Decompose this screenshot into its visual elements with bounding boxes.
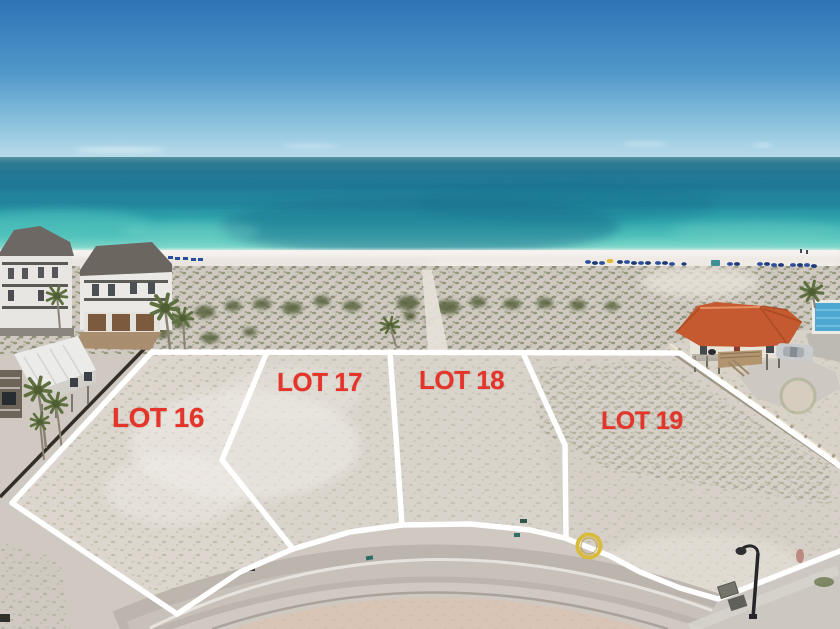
left-deck [0,370,22,418]
left-house-a [0,226,74,336]
red-weed [796,549,804,563]
parked-suv [776,343,814,362]
garage-door [88,314,106,331]
aerial-lot-photo: LOT 16 LOT 17 LOT 18 LOT 19 [0,0,840,629]
lot-17-label: LOT 17 [277,369,362,395]
lot-16-label: LOT 16 [112,404,204,432]
lot-18-label: LOT 18 [419,367,504,393]
ocean [0,157,840,258]
beach-tent [711,260,720,266]
grill [708,349,716,355]
parked-vehicle [2,392,16,405]
yellow-umbrella [607,259,614,263]
sky [0,0,840,158]
pool [812,300,840,334]
photo-scene [0,0,840,629]
lot-19-label: LOT 19 [601,409,683,434]
